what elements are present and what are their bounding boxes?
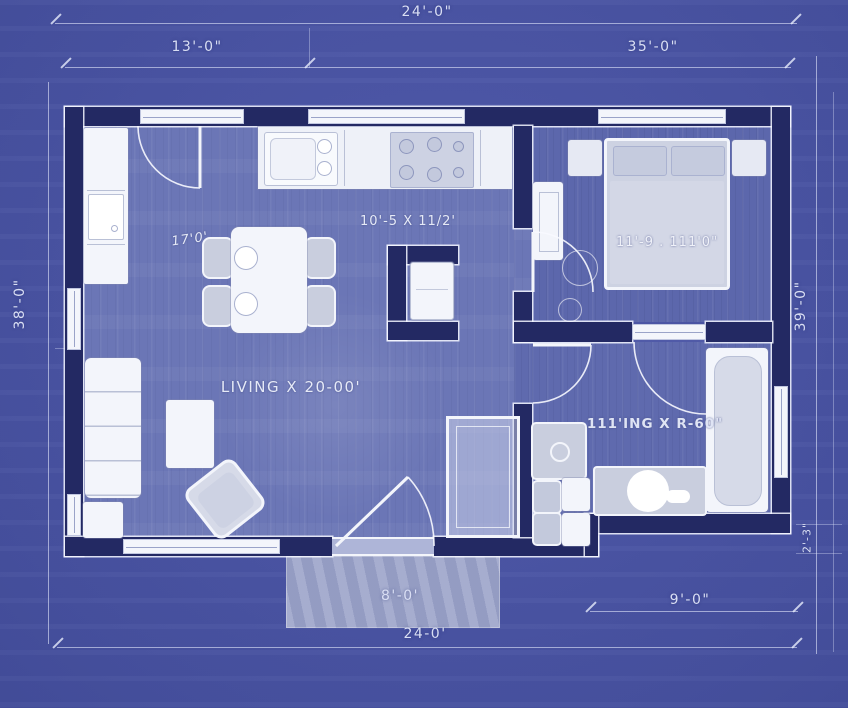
- label-kitchen-dimensions: 10'-5 X 11/2': [328, 214, 488, 229]
- dim-label-left-side: 38'-0": [12, 268, 28, 340]
- dim-label-bottom-total: 24-0': [375, 626, 475, 642]
- door-arc-bathroom-entry: [533, 345, 591, 403]
- dim-label-top-right: 35'-0": [603, 39, 703, 55]
- dim-label-top-left: 13'-0": [147, 39, 247, 55]
- door-leaf-main-entry: [336, 477, 408, 546]
- dim-label-porch: 8'-0': [350, 588, 450, 604]
- door-arc-bedroom-bathroom: [634, 342, 706, 414]
- dim-label-step-right: 2'-3": [801, 510, 814, 566]
- dim-label-top-total: 24'-0": [377, 4, 477, 20]
- label-bathroom-dimensions: 111'ING X R-60": [575, 416, 735, 432]
- floor-plan-blueprint: 24'-0" 13'-0" 35'-0" 38'-0" 39'-0" 2'-3"…: [0, 0, 848, 708]
- dim-label-bottom-right: 9'-0": [640, 592, 740, 608]
- label-living-room: LIVING X 20-00': [191, 378, 391, 396]
- door-arc-bedroom: [533, 232, 593, 292]
- dim-label-right-side: 39'-0": [793, 270, 809, 342]
- door-arc-top-left: [138, 126, 200, 188]
- label-bedroom-dimensions: 11'-9 . 111'0": [597, 235, 737, 250]
- door-arc-main-entry: [408, 477, 434, 546]
